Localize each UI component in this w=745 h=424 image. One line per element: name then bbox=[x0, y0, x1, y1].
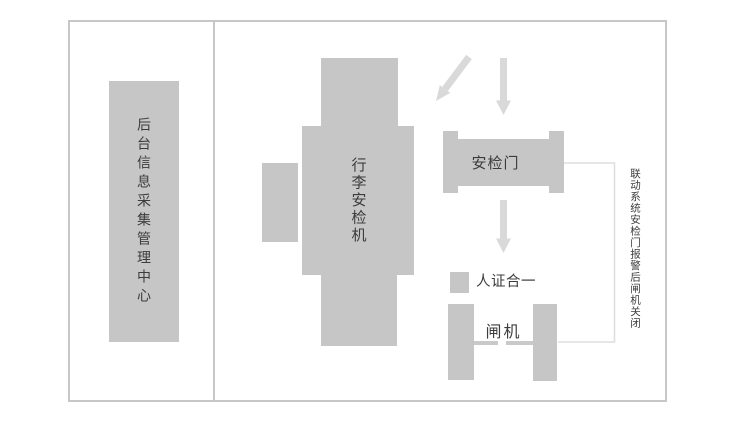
turnstile-label: 闸机 bbox=[474, 318, 533, 342]
turnstile-right-flap bbox=[506, 341, 533, 345]
baggage-machine-body: 行李安检机 bbox=[302, 126, 414, 275]
security-gate-right-pillar bbox=[549, 131, 564, 193]
baggage-machine-bottom-belt bbox=[321, 275, 397, 346]
baggage-machine-top-belt bbox=[321, 58, 398, 126]
security-check-system-diagram: 后台信息采集管理中心 行李安检机 安检门 人证合一 闸机 联动系统安 bbox=[0, 0, 745, 424]
backend-center-label: 后台信息采集管理中心 bbox=[134, 117, 154, 307]
security-gate-left-pillar bbox=[443, 131, 458, 193]
turnstile-left-flap bbox=[474, 341, 498, 345]
baggage-machine-label: 行李安检机 bbox=[348, 157, 369, 245]
frame-divider-line bbox=[213, 20, 215, 402]
baggage-machine-side-unit bbox=[262, 163, 298, 242]
backend-center-box: 后台信息采集管理中心 bbox=[109, 81, 179, 342]
security-gate-label: 安检门 bbox=[471, 152, 519, 173]
id-verification-label: 人证合一 bbox=[476, 273, 536, 291]
id-verification-marker-box bbox=[450, 272, 469, 293]
security-gate-body: 安检门 bbox=[457, 139, 550, 186]
turnstile-left-pillar bbox=[448, 304, 474, 380]
linkage-note-label: 联动系统安检门报警后闸机关闭 bbox=[627, 168, 643, 329]
turnstile-right-pillar bbox=[533, 304, 557, 381]
